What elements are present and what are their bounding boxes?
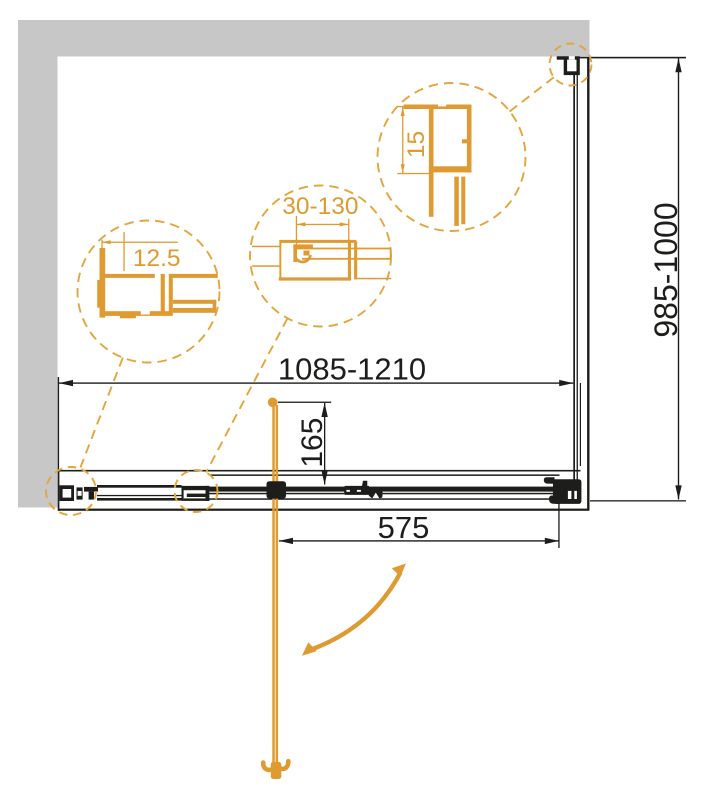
svg-text:12.5: 12.5	[133, 245, 181, 272]
svg-text:30-130: 30-130	[282, 193, 358, 220]
svg-text:575: 575	[378, 510, 430, 545]
svg-text:15: 15	[403, 131, 430, 158]
svg-text:985-1000: 985-1000	[648, 202, 684, 337]
svg-text:165: 165	[296, 418, 329, 468]
svg-text:1085-1210: 1085-1210	[278, 352, 426, 387]
